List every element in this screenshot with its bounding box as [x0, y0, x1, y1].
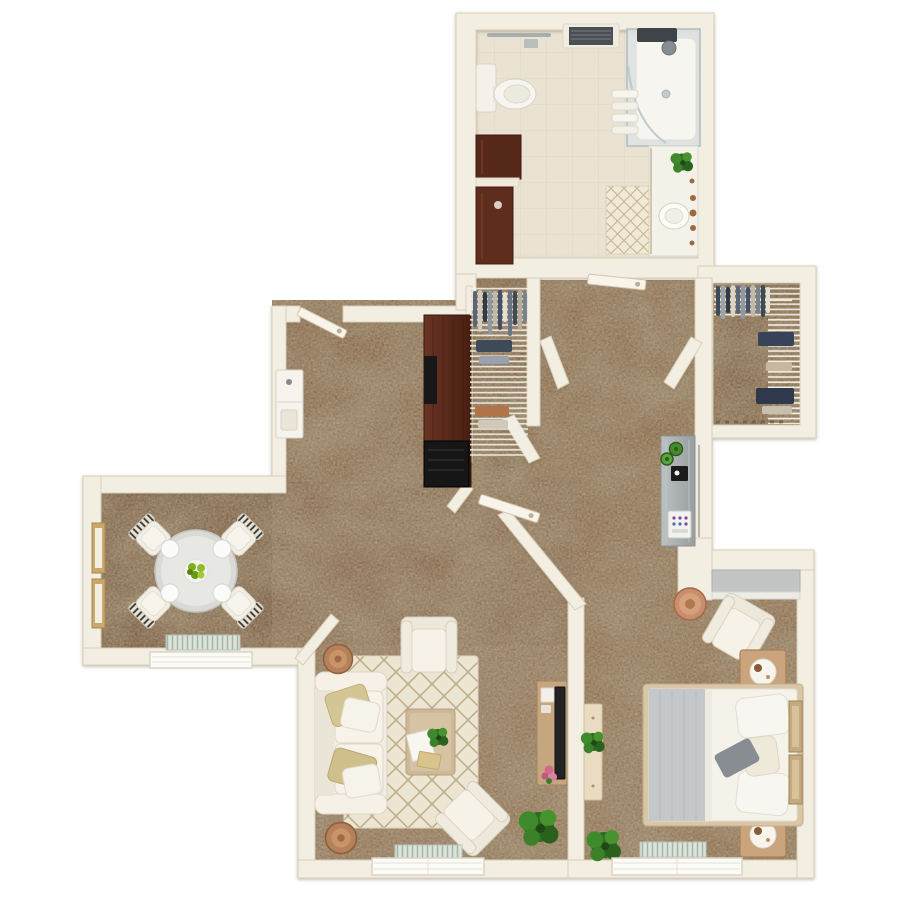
cabinet-item — [494, 201, 502, 209]
living-floor-plant — [519, 810, 559, 846]
artwork-canvas-1 — [95, 528, 102, 568]
wall-dining-top — [83, 476, 286, 493]
ceiling-vent-icon — [569, 27, 613, 45]
toilet-seat — [504, 85, 530, 103]
dining-baseboard-vent — [166, 635, 240, 650]
towel-bar — [487, 33, 551, 37]
bedroom-baseboard-vent — [640, 842, 706, 857]
cooktop-knob — [675, 471, 680, 476]
pillow — [735, 769, 791, 816]
book — [417, 751, 441, 770]
tv-bar — [555, 687, 565, 779]
dresser-plant — [581, 732, 605, 754]
gray-blanket — [649, 689, 705, 821]
wall-bedroom-top — [695, 550, 814, 570]
floor-plan-canvas — [0, 0, 900, 900]
vanity-sink-basin — [665, 209, 683, 224]
artwork-canvas-2 — [95, 584, 102, 623]
small-appliance — [668, 511, 691, 538]
place-setting — [213, 540, 231, 558]
vanity-plant — [671, 152, 694, 172]
place-setting — [213, 584, 231, 602]
pillow — [735, 693, 791, 739]
cabinet-shelf-edge — [476, 178, 519, 187]
wall-wood-panels — [789, 701, 802, 804]
media-console — [537, 681, 567, 785]
sofa — [315, 672, 387, 814]
slim-dresser — [581, 704, 605, 800]
shower-fixture — [637, 28, 677, 42]
dining-table — [155, 530, 237, 612]
towel-hook — [524, 39, 538, 48]
living-window — [372, 858, 484, 875]
wall-den-closet-right — [527, 278, 540, 426]
cooktop — [671, 466, 688, 481]
dining-window — [150, 652, 252, 668]
place-setting — [161, 584, 179, 602]
vanity — [649, 146, 698, 256]
wardrobe-black-cabinet — [424, 441, 469, 487]
den-wire-closet — [470, 287, 528, 457]
bed — [643, 684, 803, 826]
console-decor — [281, 410, 297, 430]
den-wardrobe — [424, 315, 471, 487]
bath-mat — [606, 186, 649, 254]
console-lamp — [286, 379, 292, 385]
terracotta-side-table — [674, 588, 706, 620]
shower-drain-icon — [662, 90, 670, 98]
side-table-top — [324, 645, 353, 674]
wall-living-left — [298, 648, 315, 878]
armchair-top — [401, 617, 457, 673]
bedroom-floor-plant — [586, 830, 620, 861]
shower-head-icon — [662, 41, 676, 55]
console-decor — [541, 705, 551, 713]
coffee-table-plant — [427, 728, 448, 747]
floor-plan — [0, 0, 900, 900]
coffee-table — [406, 709, 455, 775]
sheet-fold — [705, 689, 712, 821]
room-kitchen — [661, 436, 699, 546]
wardrobe-tv-panel — [424, 356, 437, 404]
wall-kitchen-right — [695, 278, 712, 554]
living-baseboard-vent — [395, 845, 462, 859]
hanging-clothes — [716, 285, 770, 319]
gray-dresser — [712, 570, 800, 599]
bedroom-window — [612, 858, 742, 875]
console-decor — [541, 688, 554, 702]
den-console-table — [276, 370, 303, 438]
white-pillow — [341, 763, 382, 799]
place-setting — [161, 540, 179, 558]
hanging-clothes — [473, 290, 527, 336]
side-table-bottom — [325, 822, 356, 853]
